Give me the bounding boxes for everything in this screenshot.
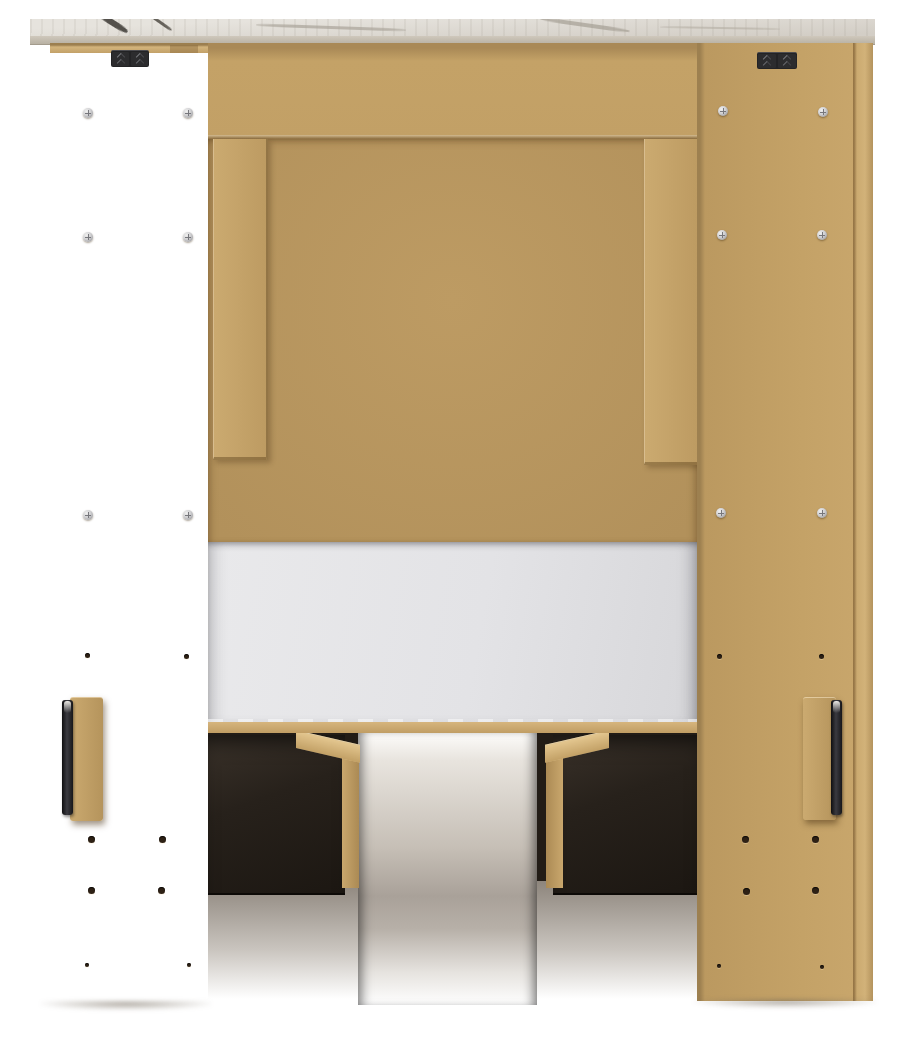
pilot-hole <box>820 965 824 969</box>
pilot-hole <box>159 836 166 843</box>
right-drawer-runner <box>546 753 563 888</box>
bracket-plate <box>758 54 776 68</box>
product-photo-scene <box>0 0 901 1050</box>
center-gap-light <box>358 733 537 1005</box>
screw <box>717 230 727 240</box>
pilot-hole <box>819 654 824 659</box>
left-mounting-batten <box>213 139 268 460</box>
screw <box>183 108 193 118</box>
pilot-hole <box>812 887 819 894</box>
pilot-hole <box>812 836 819 843</box>
right-mounting-batten <box>644 139 699 465</box>
center-back-panel <box>208 139 697 542</box>
right-handle-bar <box>831 700 842 815</box>
screw <box>817 230 827 240</box>
screw <box>818 107 828 117</box>
left-handle-bar <box>62 700 73 815</box>
screw <box>183 510 193 520</box>
screw <box>718 106 728 116</box>
pilot-hole <box>743 888 750 895</box>
pilot-hole <box>717 964 721 968</box>
pilot-hole <box>85 653 90 658</box>
pilot-hole <box>85 963 89 967</box>
screw <box>716 508 726 518</box>
right-storage-drawer <box>553 735 697 895</box>
mattress <box>208 542 697 724</box>
bracket-plate <box>131 52 148 66</box>
left-drawer-runner <box>342 753 359 888</box>
pilot-hole <box>742 836 749 843</box>
under-bed-area <box>208 733 697 1005</box>
bracket-plate <box>112 52 129 66</box>
left-handle-block <box>70 697 103 821</box>
pilot-hole <box>88 887 95 894</box>
left-connector-bracket <box>111 50 149 67</box>
left-panel-floor-shadow <box>40 1001 212 1010</box>
pilot-hole <box>184 654 189 659</box>
pilot-hole <box>88 836 95 843</box>
screw <box>83 510 93 520</box>
right-panel-floor-shadow <box>693 999 877 1008</box>
bracket-plate <box>778 54 796 68</box>
pilot-hole <box>187 963 191 967</box>
screw <box>83 232 93 242</box>
right-panel-outer-edge <box>853 43 873 1001</box>
left-side-panel <box>44 43 208 1003</box>
screw <box>83 108 93 118</box>
pilot-hole <box>158 887 165 894</box>
left-storage-drawer <box>208 735 345 895</box>
right-side-panel <box>697 43 873 1001</box>
upper-back-rail <box>208 43 697 139</box>
pilot-hole <box>717 654 722 659</box>
screw <box>817 508 827 518</box>
right-connector-bracket <box>757 52 797 69</box>
screw <box>183 232 193 242</box>
